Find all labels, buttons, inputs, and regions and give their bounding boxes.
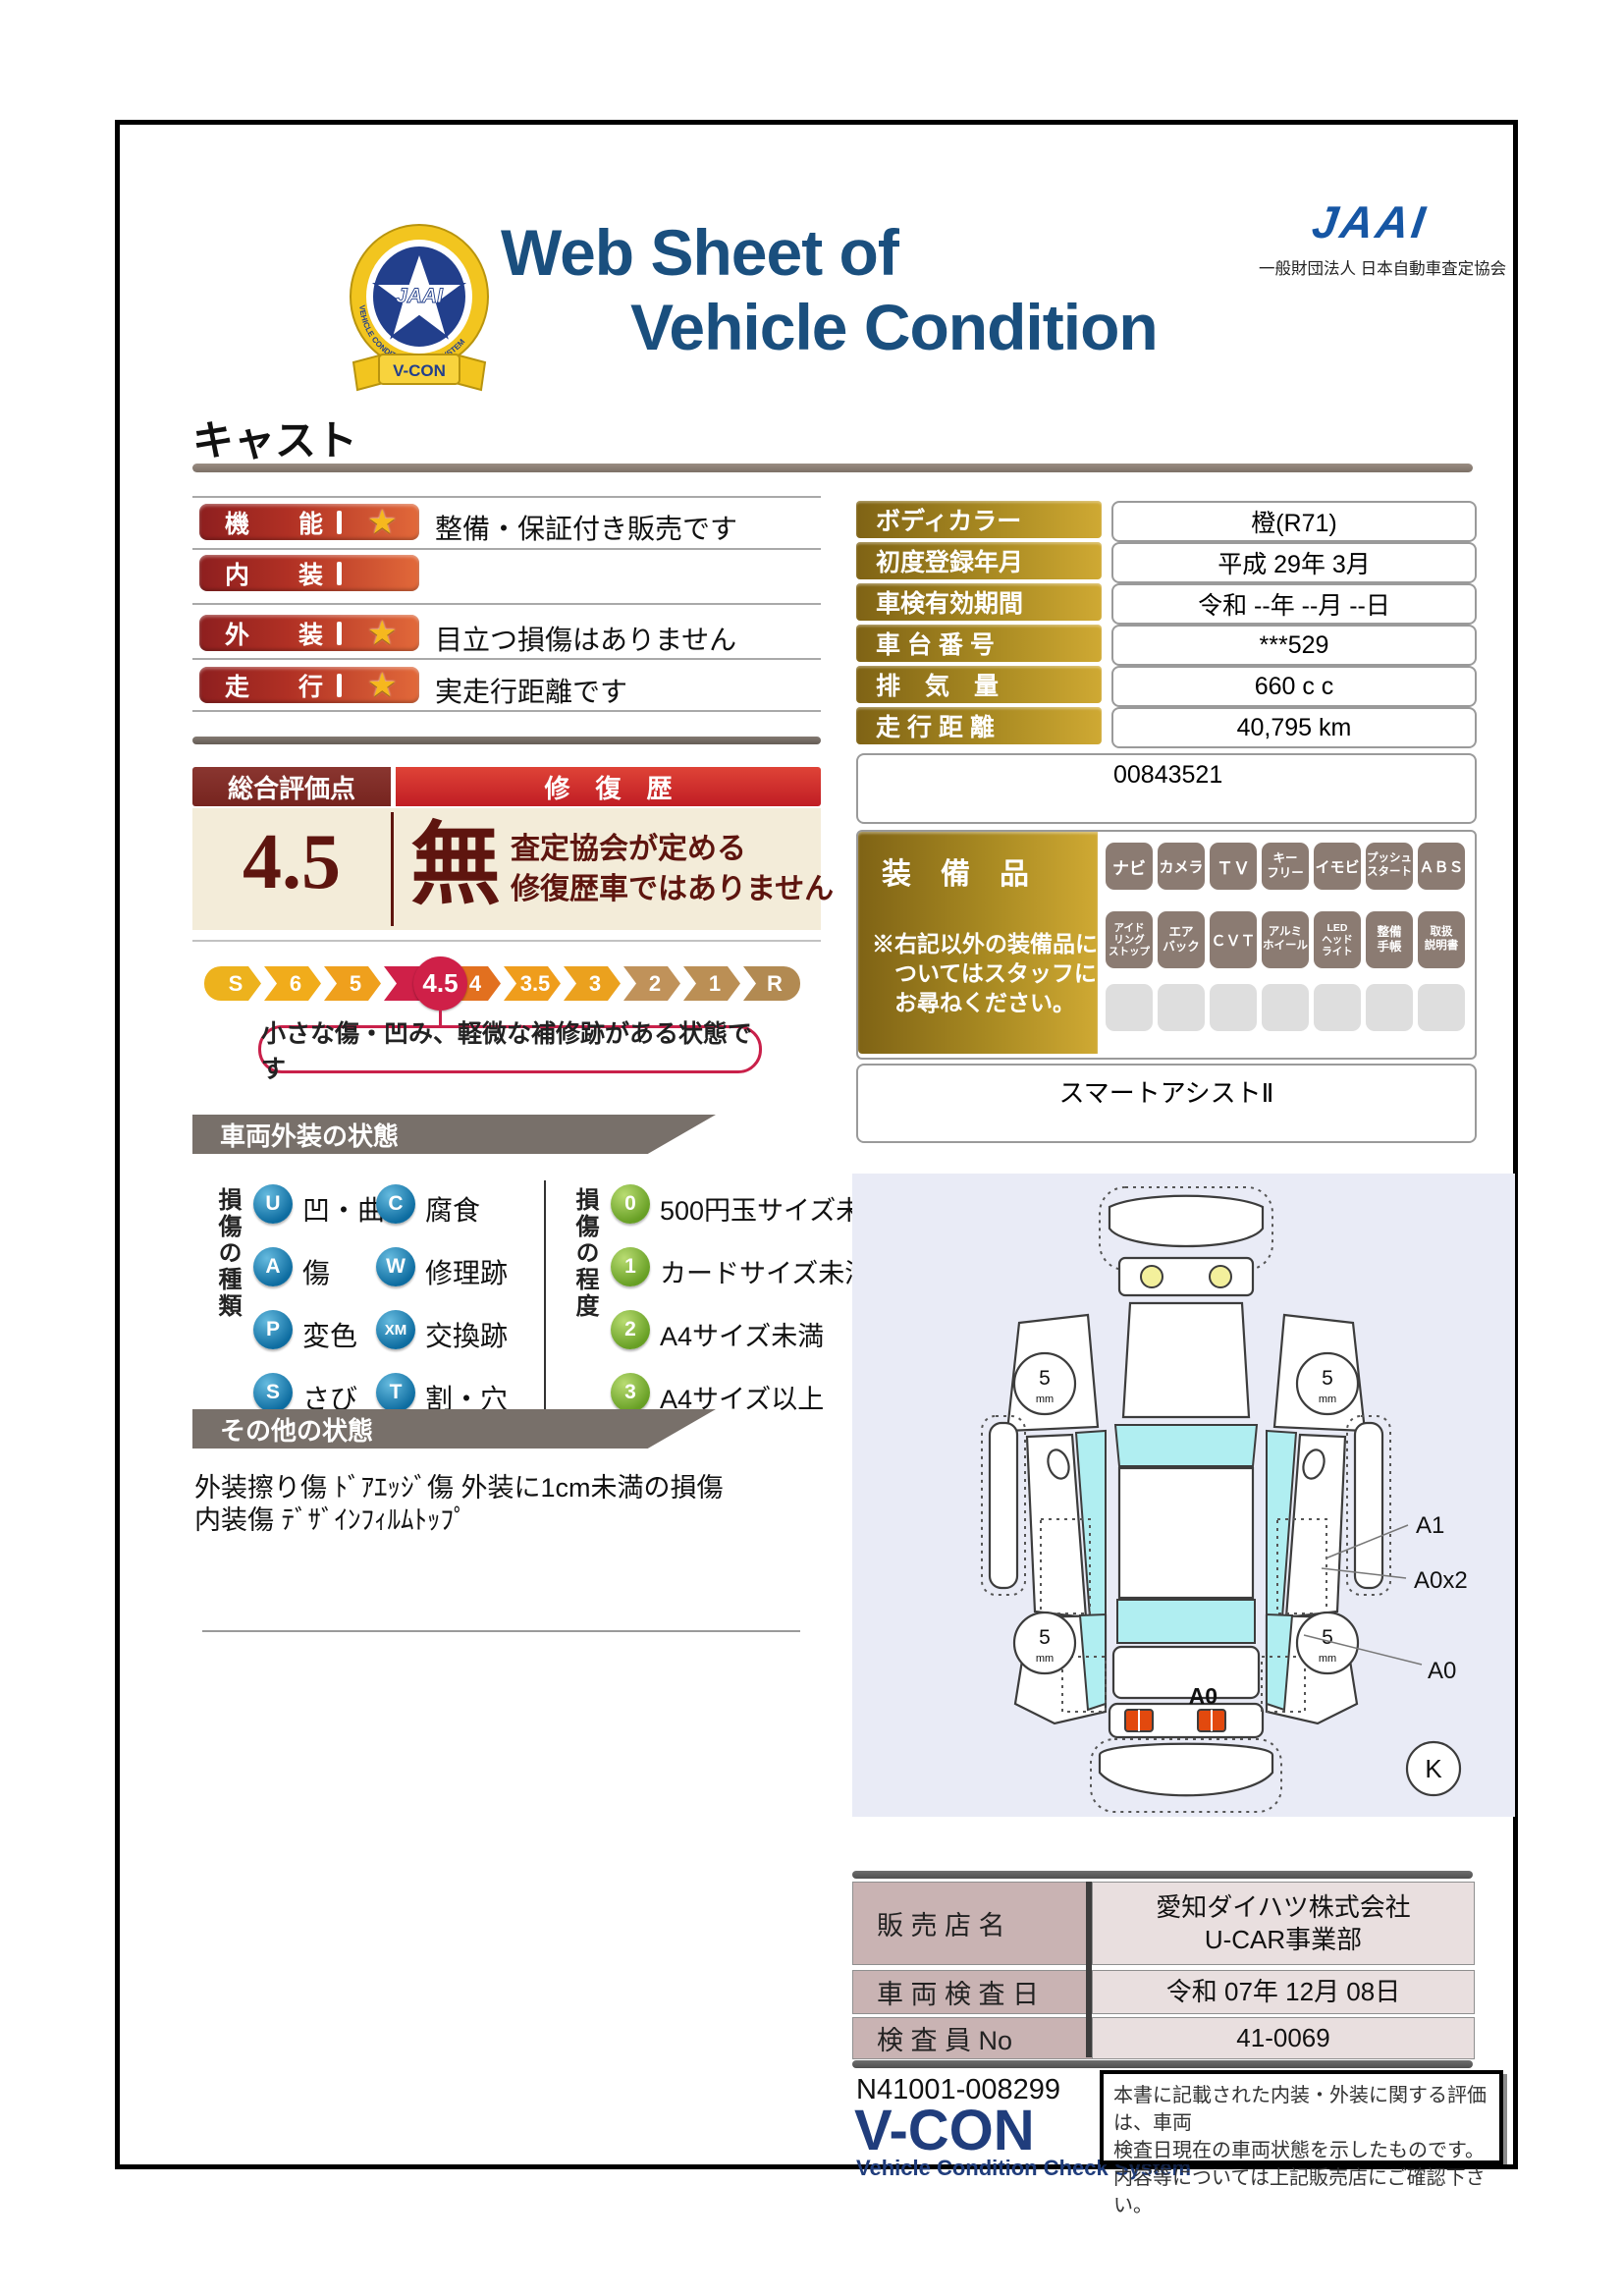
equipment-badge-empty bbox=[1106, 984, 1153, 1031]
svg-text:5: 5 bbox=[1039, 1626, 1051, 1649]
damage-degree-badge: 2 bbox=[611, 1310, 650, 1349]
rear-bumper bbox=[1100, 1744, 1272, 1796]
rear-window bbox=[1117, 1600, 1255, 1643]
info-label: 初度登録年月 bbox=[856, 542, 1102, 579]
car-top-view: 5 mm 5 mm 5 mm 5 mm A1 A0x2 bbox=[852, 1174, 1515, 1817]
dealer-name-value: 愛知ダイハツ株式会社 U-CAR事業部 bbox=[1092, 1882, 1475, 1965]
rating-divider bbox=[337, 511, 342, 534]
equipment-badge-empty bbox=[1418, 984, 1465, 1031]
overall-body-divider bbox=[391, 812, 394, 926]
jaai-subtitle: 一般財団法人 日本自動車査定協会 bbox=[1259, 255, 1506, 279]
rating-row-mileage: 走 行 ★ bbox=[199, 667, 419, 703]
equipment-badge: カメラ bbox=[1158, 843, 1205, 890]
dealer-table-divider bbox=[1086, 1882, 1092, 2057]
damage-degree-badge: 0 bbox=[611, 1184, 650, 1224]
equipment-badge: 整備 手帳 bbox=[1366, 911, 1413, 968]
equipment-badge: エア バック bbox=[1158, 911, 1205, 968]
equipment-badge-empty bbox=[1366, 984, 1413, 1031]
reference-number: 00843521 bbox=[1113, 761, 1222, 790]
damage-degree-label: A4サイズ未満 bbox=[660, 1315, 824, 1353]
equipment-badge: プッシュ スタート bbox=[1366, 843, 1413, 890]
tailgate bbox=[1113, 1647, 1259, 1698]
rating-divider bbox=[337, 622, 342, 645]
rating-row-exterior: 外 装 ★ bbox=[199, 615, 419, 651]
dealer-row-label: 検 査 員 No bbox=[852, 2017, 1111, 2059]
equipment-note: ※右記以外の装備品に ついてはスタッフに お尋ねください。 bbox=[872, 930, 1098, 1018]
equipment-title: 装 備 品 bbox=[882, 849, 1098, 893]
grade-segment: 3.5 bbox=[504, 966, 561, 1001]
rating-note: 整備・保証付き販売です bbox=[435, 508, 737, 547]
grade-segment: R bbox=[743, 966, 800, 1001]
legend-divider bbox=[544, 1180, 546, 1421]
header-separator bbox=[192, 464, 1473, 472]
extra-equipment-box: スマートアシストⅡ bbox=[856, 1064, 1477, 1143]
star-icon: ★ bbox=[367, 503, 397, 542]
front-bumper bbox=[1109, 1196, 1263, 1246]
section-tab-exterior: 車両外装の状態 bbox=[192, 1115, 716, 1154]
damage-label-a0-rear: A0 bbox=[1189, 1683, 1217, 1709]
damage-type-badge: C bbox=[376, 1184, 415, 1224]
info-value-mileage: 40,795 km bbox=[1111, 707, 1477, 748]
right-rocker bbox=[1355, 1423, 1382, 1588]
info-label: 車検有効期間 bbox=[856, 583, 1102, 621]
damage-type-label: 凹・曲 bbox=[302, 1189, 385, 1229]
dealer-table-bottom-bar bbox=[852, 2060, 1473, 2068]
info-value-body-color: 橙(R71) bbox=[1111, 501, 1477, 542]
dealer-row-label: 販 売 店 名 bbox=[852, 1882, 1111, 1965]
rating-label: 走 行 bbox=[199, 668, 323, 703]
damage-type-label: 交換跡 bbox=[425, 1315, 508, 1354]
equipment-badge-empty bbox=[1262, 984, 1309, 1031]
footer-note: 本書に記載された内装・外装に関する評価は、車両 検査日現在の車両状態を示したもの… bbox=[1100, 2070, 1503, 2164]
damage-degree-title: 損傷の程度 bbox=[568, 1187, 602, 1433]
info-label: 車 台 番 号 bbox=[856, 625, 1102, 662]
vcon-wordmark: V-CON bbox=[854, 2103, 1035, 2159]
equipment-badge-empty bbox=[1210, 984, 1257, 1031]
damage-type-badge: A bbox=[253, 1247, 293, 1286]
hood bbox=[1123, 1303, 1249, 1417]
damage-type-label: 傷 bbox=[302, 1252, 330, 1291]
damage-degree-badge: 3 bbox=[611, 1373, 650, 1412]
sheet-title-line1: Web Sheet of bbox=[501, 215, 898, 290]
selected-grade: 4.5 bbox=[413, 957, 467, 1011]
rating-label: 機 能 bbox=[199, 505, 323, 540]
grade-segment: S bbox=[204, 966, 261, 1001]
info-label: 走 行 距 離 bbox=[856, 707, 1102, 744]
equipment-badge: イモビ bbox=[1314, 843, 1361, 890]
headlight-left bbox=[1141, 1266, 1163, 1287]
rating-divider bbox=[337, 674, 342, 697]
inspector-number-value: 41-0069 bbox=[1092, 2017, 1475, 2059]
damage-type-badge: W bbox=[376, 1247, 415, 1286]
grade-mark: K bbox=[1425, 1754, 1442, 1783]
repair-history-note: 査定協会が定める 修復歴車ではありません bbox=[511, 830, 834, 909]
info-value-displacement: 660 c c bbox=[1111, 666, 1477, 707]
rating-label: 外 装 bbox=[199, 616, 323, 651]
svg-text:mm: mm bbox=[1319, 1653, 1336, 1665]
extra-equipment: スマートアシストⅡ bbox=[1059, 1073, 1274, 1110]
equipment-badge: 取扱 説明書 bbox=[1418, 911, 1465, 968]
equipment-badge: LED ヘッド ライト bbox=[1314, 911, 1361, 968]
rating-note: 実走行距離です bbox=[435, 671, 627, 710]
equipment-badge-empty bbox=[1314, 984, 1361, 1031]
svg-text:JAAI: JAAI bbox=[396, 285, 444, 307]
damage-type-label: 腐食 bbox=[425, 1189, 480, 1229]
overall-score-header: 総合評価点 bbox=[192, 767, 391, 806]
info-label: ボディカラー bbox=[856, 501, 1102, 538]
damage-type-label: 修理跡 bbox=[425, 1252, 508, 1291]
damage-type-badge: XM bbox=[376, 1310, 415, 1349]
grade-segment: 6 bbox=[264, 966, 321, 1001]
equipment-title-area: 装 備 品 ※右記以外の装備品に ついてはスタッフに お尋ねください。 bbox=[858, 832, 1098, 1054]
vcon-emblem: VEHICLE CONDITION CHECK SYSTEM JAAI V-CO… bbox=[346, 223, 493, 400]
repair-history-value: 無 bbox=[410, 820, 501, 910]
damage-type-label: 変色 bbox=[302, 1315, 357, 1354]
reference-number-box: 00843521 bbox=[856, 753, 1477, 824]
dealer-row-label: 車 両 検 査 日 bbox=[852, 1970, 1111, 2014]
repair-history-header: 修 復 歴 bbox=[396, 767, 821, 806]
svg-text:mm: mm bbox=[1036, 1653, 1054, 1665]
svg-text:5: 5 bbox=[1039, 1367, 1051, 1390]
damage-type-badge: U bbox=[253, 1184, 293, 1224]
equipment-badge: アルミ ホイール bbox=[1262, 911, 1309, 968]
equipment-badge: ナビ bbox=[1106, 843, 1153, 890]
svg-text:5: 5 bbox=[1322, 1626, 1333, 1649]
rating-row-function: 機 能 ★ bbox=[199, 504, 419, 540]
windshield bbox=[1115, 1425, 1257, 1466]
svg-text:mm: mm bbox=[1319, 1394, 1336, 1405]
info-value-chassis-number: ***529 bbox=[1111, 625, 1477, 666]
inspection-date-value: 令和 07年 12月 08日 bbox=[1092, 1970, 1475, 2014]
grade-segment: 2 bbox=[623, 966, 680, 1001]
damage-type-badge: S bbox=[253, 1373, 293, 1412]
section-bar bbox=[192, 737, 821, 744]
svg-text:mm: mm bbox=[1036, 1394, 1054, 1405]
damage-label-a0-side: A0 bbox=[1428, 1658, 1456, 1684]
section-tab-other: その他の状態 bbox=[192, 1409, 716, 1449]
headlight-right bbox=[1210, 1266, 1231, 1287]
damage-type-badge: T bbox=[376, 1373, 415, 1412]
grade-segment: 1 bbox=[683, 966, 740, 1001]
jaai-logo: JAAI bbox=[1309, 195, 1431, 248]
other-state-text: 外装擦り傷 ﾄﾞｱｴｯｼﾞ傷 外装に1cm未満の損傷 内装傷 ﾃﾞｻﾞｲﾝﾌｨﾙ… bbox=[194, 1472, 803, 1537]
star-icon: ★ bbox=[367, 666, 397, 705]
rating-divider bbox=[337, 562, 342, 585]
equipment-badge: ＴＶ bbox=[1210, 843, 1257, 890]
grade-description: 小さな傷・凹み、軽微な補修跡がある状態です bbox=[258, 1025, 762, 1073]
svg-text:5: 5 bbox=[1322, 1367, 1333, 1390]
dealer-table-top-bar bbox=[852, 1871, 1473, 1879]
damage-type-title: 損傷の種類 bbox=[210, 1187, 244, 1433]
left-rocker bbox=[990, 1423, 1017, 1588]
damage-type-badge: P bbox=[253, 1310, 293, 1349]
damage-diagram: 5 mm 5 mm 5 mm 5 mm A1 A0x2 bbox=[852, 1174, 1515, 1817]
equipment-badge: ＡＢＳ bbox=[1418, 843, 1465, 890]
overall-score: 4.5 bbox=[192, 818, 391, 907]
headlight-panel bbox=[1119, 1258, 1253, 1295]
info-label: 排 気 量 bbox=[856, 666, 1102, 703]
damage-degree-label: カードサイズ未満 bbox=[660, 1252, 871, 1290]
info-value-first-registration: 平成 29年 3月 bbox=[1111, 542, 1477, 583]
rating-label: 内 装 bbox=[199, 556, 323, 591]
info-value-inspection-period: 令和 --年 --月 --日 bbox=[1111, 583, 1477, 625]
vehicle-condition-sheet: { "header": { "title_line1": "Web Sheet … bbox=[0, 0, 1623, 2296]
vehicle-name: キャスト bbox=[192, 408, 357, 467]
damage-label-a0x2: A0x2 bbox=[1414, 1567, 1468, 1594]
equipment-badge: キー フリー bbox=[1262, 843, 1309, 890]
equipment-badge: アイド リング ストップ bbox=[1106, 911, 1153, 968]
grade-segment: 5 bbox=[324, 966, 381, 1001]
star-icon: ★ bbox=[367, 614, 397, 653]
grade-segment: 3 bbox=[564, 966, 621, 1001]
damage-label-a1: A1 bbox=[1416, 1512, 1444, 1539]
sheet-page: VEHICLE CONDITION CHECK SYSTEM JAAI V-CO… bbox=[115, 120, 1518, 2169]
equipment-badge-empty bbox=[1158, 984, 1205, 1031]
overall-header: 総合評価点 修 復 歴 bbox=[192, 767, 821, 806]
equipment-badge: ＣＶＴ bbox=[1210, 911, 1257, 968]
damage-degree-badge: 1 bbox=[611, 1247, 650, 1286]
roof bbox=[1119, 1468, 1253, 1598]
rating-row-interior: 内 装 bbox=[199, 555, 419, 591]
rating-note: 目立つ損傷はありません bbox=[435, 619, 736, 658]
svg-text:V-CON: V-CON bbox=[393, 361, 446, 380]
grade-scale: S 6 5 4 3.5 3 2 1 R bbox=[204, 966, 800, 1001]
sheet-title-line2: Vehicle Condition bbox=[630, 290, 1158, 364]
